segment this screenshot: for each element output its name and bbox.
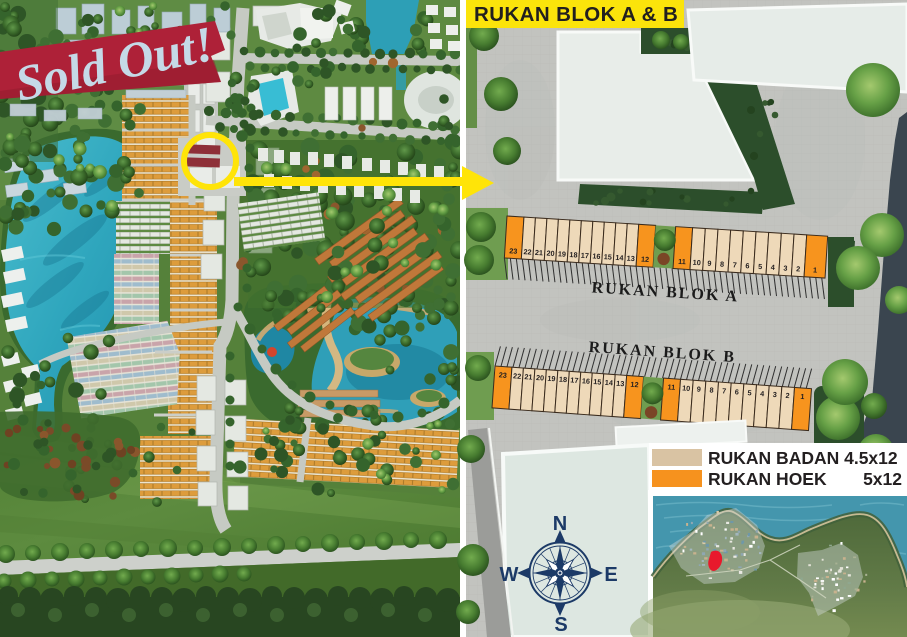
svg-text:12: 12 — [641, 255, 650, 264]
svg-text:3: 3 — [783, 263, 788, 272]
svg-text:11: 11 — [667, 382, 675, 392]
svg-text:RUKAN BLOK A & B: RUKAN BLOK A & B — [474, 3, 678, 26]
svg-text:N: N — [553, 513, 567, 535]
svg-text:22: 22 — [523, 247, 532, 256]
svg-text:13: 13 — [616, 379, 625, 389]
svg-text:15: 15 — [593, 377, 602, 387]
svg-text:S: S — [554, 614, 567, 636]
svg-text:23: 23 — [509, 246, 518, 255]
svg-text:2: 2 — [796, 264, 801, 273]
svg-text:6: 6 — [745, 261, 750, 270]
svg-text:13: 13 — [626, 254, 635, 263]
svg-text:11: 11 — [678, 257, 686, 266]
svg-text:6: 6 — [735, 387, 740, 396]
svg-text:RUKAN BADAN 4.5x12: RUKAN BADAN 4.5x12 — [708, 448, 898, 468]
svg-text:5: 5 — [747, 388, 752, 397]
svg-text:2: 2 — [785, 391, 790, 400]
svg-text:8: 8 — [720, 259, 725, 268]
svg-text:9: 9 — [707, 259, 712, 268]
svg-text:17: 17 — [570, 375, 579, 385]
svg-text:7: 7 — [722, 386, 727, 395]
svg-text:16: 16 — [582, 376, 591, 386]
svg-text:1: 1 — [813, 265, 818, 274]
svg-text:RUKAN HOEK: RUKAN HOEK — [708, 469, 827, 489]
svg-text:21: 21 — [535, 248, 544, 257]
svg-text:18: 18 — [569, 250, 578, 259]
svg-text:20: 20 — [536, 373, 545, 383]
svg-text:19: 19 — [547, 374, 556, 384]
svg-text:18: 18 — [559, 375, 568, 385]
svg-text:9: 9 — [697, 385, 702, 394]
svg-text:8: 8 — [709, 385, 714, 394]
svg-text:10: 10 — [682, 383, 691, 393]
svg-text:5x12: 5x12 — [863, 469, 902, 489]
svg-text:5: 5 — [758, 262, 763, 271]
svg-text:20: 20 — [546, 249, 555, 258]
svg-text:16: 16 — [592, 251, 601, 260]
svg-text:12: 12 — [630, 380, 639, 390]
svg-text:15: 15 — [603, 252, 612, 261]
svg-text:19: 19 — [558, 249, 567, 258]
svg-text:E: E — [604, 564, 617, 586]
svg-text:23: 23 — [498, 370, 507, 380]
svg-text:7: 7 — [732, 260, 737, 269]
svg-text:22: 22 — [513, 371, 522, 381]
svg-text:14: 14 — [615, 253, 625, 263]
svg-text:21: 21 — [524, 372, 533, 382]
svg-text:1: 1 — [800, 392, 805, 401]
svg-text:10: 10 — [692, 258, 701, 267]
svg-text:W: W — [500, 564, 519, 586]
svg-text:17: 17 — [581, 251, 590, 260]
svg-text:3: 3 — [773, 390, 778, 399]
